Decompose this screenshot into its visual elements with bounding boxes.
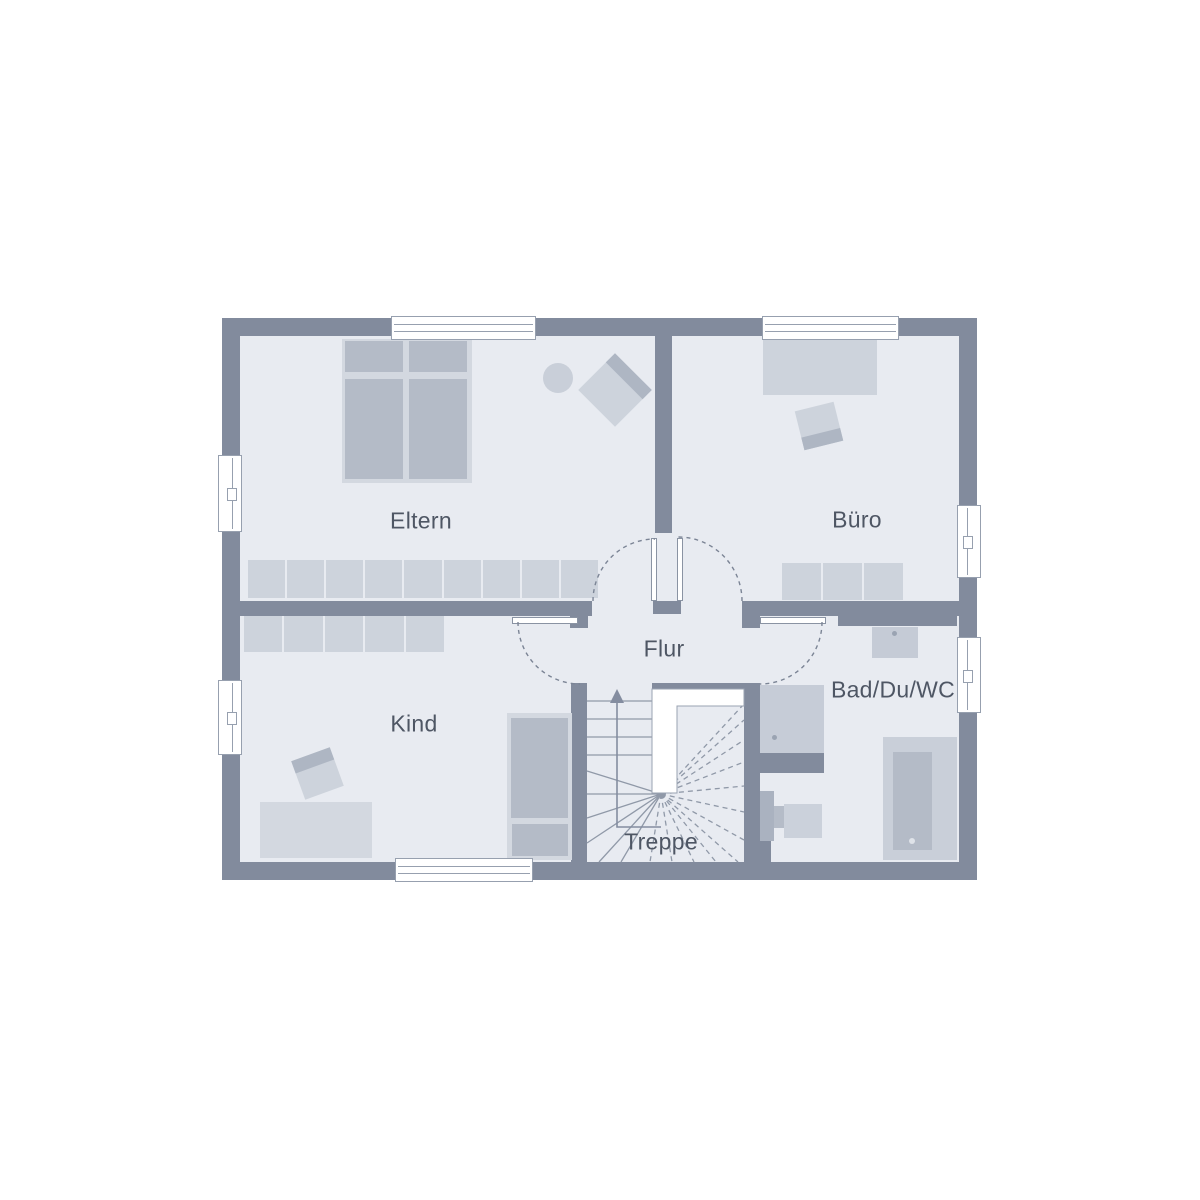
bed-mattress-right xyxy=(409,379,467,479)
washbasin-counter xyxy=(838,614,957,626)
window-eltern-left xyxy=(218,455,242,532)
room-label-flur: Flur xyxy=(644,636,685,663)
window-handle xyxy=(963,670,973,683)
bed-pillow-left xyxy=(345,341,403,372)
wall-stub-center xyxy=(653,601,681,614)
wall-horizontal-left xyxy=(240,601,592,616)
stairwell-wall-right xyxy=(744,683,760,862)
bathtub xyxy=(883,737,957,860)
washbasin-tap xyxy=(892,631,897,636)
shower xyxy=(760,685,824,753)
shower-drain xyxy=(772,735,777,740)
floor-plan: Eltern Büro Kind Flur Bad/Du/WC Treppe xyxy=(0,0,1200,1200)
stool-circle xyxy=(543,363,573,393)
bed-pillow-right xyxy=(409,341,467,372)
stairwell-edge-strip xyxy=(652,683,744,690)
wall-jamb-bad-door xyxy=(742,601,760,628)
double-bed xyxy=(342,339,472,483)
bed-kind xyxy=(507,713,572,860)
wall-stub-wc xyxy=(760,838,771,862)
room-label-bad: Bad/Du/WC xyxy=(831,677,955,704)
bed-kind-mattress xyxy=(511,718,568,818)
wardrobe-eltern xyxy=(248,560,598,598)
window-buero-right xyxy=(957,505,981,578)
wall-divider-eltern-buero xyxy=(655,336,672,533)
stairwell-wall-left xyxy=(571,683,587,862)
bathtub-inner xyxy=(893,752,932,850)
room-label-treppe: Treppe xyxy=(624,829,698,856)
shower-partition-wall xyxy=(760,753,824,773)
room-label-kind: Kind xyxy=(390,711,437,738)
wc-bowl xyxy=(784,804,822,838)
window-handle xyxy=(963,536,973,549)
window-bad-right xyxy=(957,637,981,713)
door-leaf-buero xyxy=(677,538,683,601)
room-label-buero: Büro xyxy=(832,507,882,534)
wc-tank xyxy=(760,791,774,841)
door-leaf-eltern xyxy=(651,538,657,601)
window-kind-left xyxy=(218,680,242,755)
wc-seat xyxy=(774,806,784,828)
washbasin xyxy=(872,627,918,658)
bed-kind-foot xyxy=(512,824,568,856)
door-leaf-kind xyxy=(512,617,578,624)
desk-buero xyxy=(763,338,877,395)
window-handle xyxy=(227,488,237,501)
door-leaf-bad xyxy=(760,617,826,624)
window-eltern-top xyxy=(391,316,536,340)
window-handle xyxy=(227,712,237,725)
sideboard-buero xyxy=(782,563,903,600)
bathtub-drain xyxy=(909,838,915,844)
wardrobe-kind xyxy=(244,616,444,652)
window-buero-top xyxy=(762,316,899,340)
window-kind-bottom xyxy=(395,858,533,882)
bed-mattress-left xyxy=(345,379,403,479)
desk-kind xyxy=(260,802,372,858)
room-label-eltern: Eltern xyxy=(390,508,452,535)
